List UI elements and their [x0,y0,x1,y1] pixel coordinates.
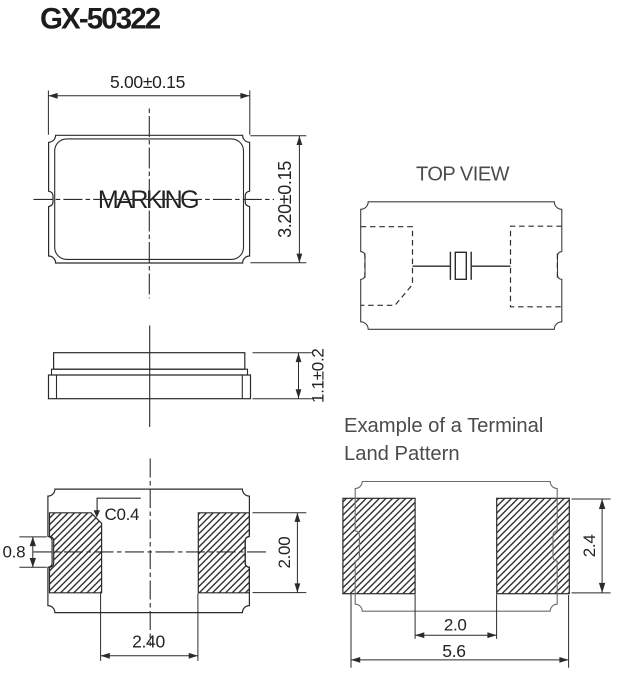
svg-text:5.6: 5.6 [442,641,465,661]
svg-text:TOP VIEW: TOP VIEW [416,163,510,185]
svg-text:2.0: 2.0 [444,616,467,635]
svg-text:1.1±0.2: 1.1±0.2 [309,348,328,403]
svg-text:MARKING: MARKING [98,186,198,214]
svg-text:GX-50322: GX-50322 [40,3,161,36]
svg-text:C0.4: C0.4 [105,505,140,524]
svg-text:2.00: 2.00 [275,537,294,569]
svg-text:Land Pattern: Land Pattern [344,443,460,465]
svg-text:0.8: 0.8 [3,543,26,562]
svg-text:Example of a Terminal: Example of a Terminal [344,415,543,437]
svg-text:5.00±0.15: 5.00±0.15 [110,72,185,92]
svg-text:3.20±0.15: 3.20±0.15 [275,161,295,238]
svg-text:2.4: 2.4 [580,535,599,558]
svg-text:2.40: 2.40 [132,632,165,652]
